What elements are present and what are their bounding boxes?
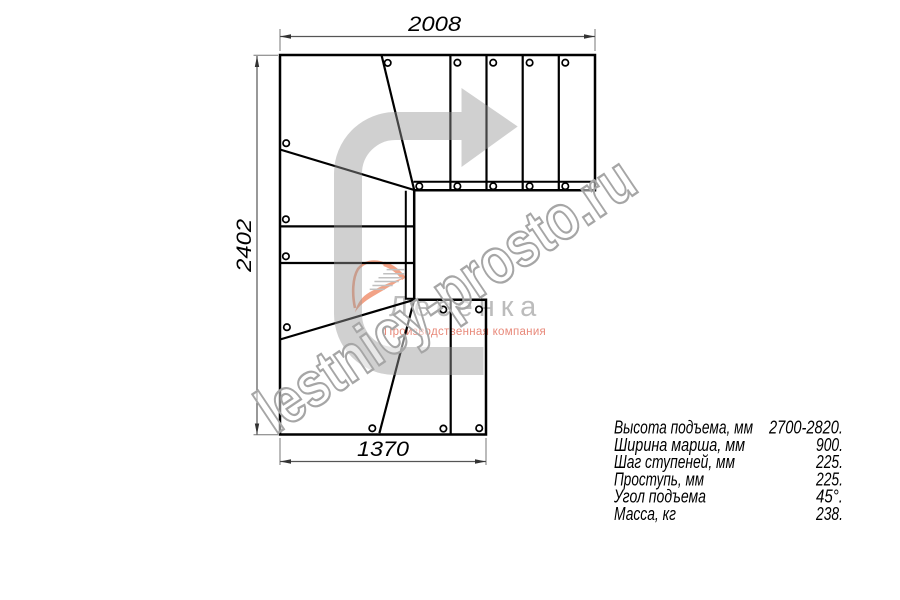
svg-text:238.: 238.	[815, 504, 843, 524]
svg-text:2008: 2008	[407, 12, 461, 36]
svg-text:Масса, кг: Масса, кг	[614, 504, 676, 524]
svg-text:2402: 2402	[232, 219, 256, 273]
svg-text:1370: 1370	[357, 437, 409, 461]
